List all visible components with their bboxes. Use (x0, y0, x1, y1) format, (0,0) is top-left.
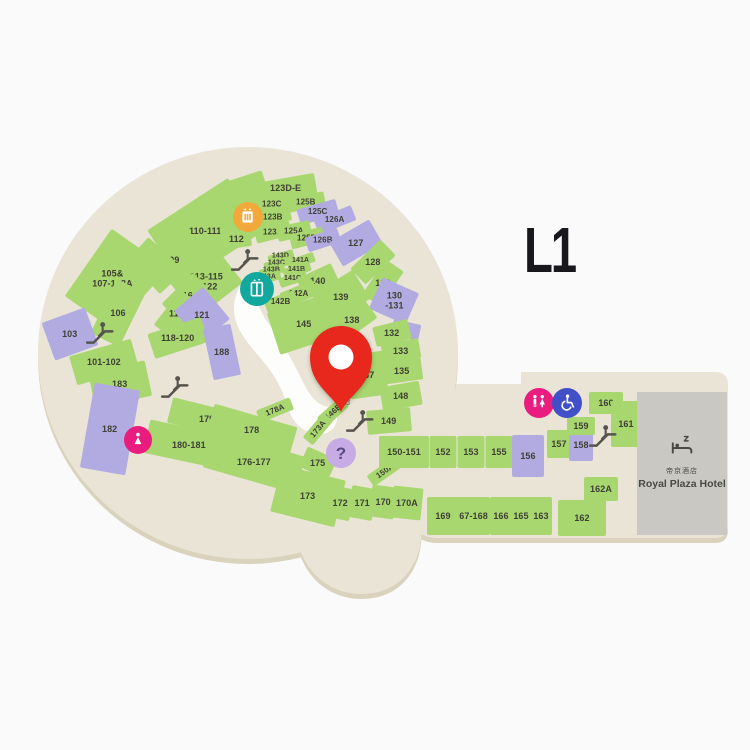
shop-label: 148 (393, 391, 408, 401)
shop-152[interactable]: 152 (430, 436, 457, 468)
information-icon: ? (326, 438, 356, 468)
shop-label: 159 (573, 421, 588, 431)
shop-label: 169 (435, 511, 450, 521)
shop-170A[interactable]: 170A (390, 486, 423, 521)
shop-label: 127 (348, 238, 363, 248)
shop-label: 133 (393, 346, 408, 356)
shop-label: 112 (229, 234, 244, 244)
shop-169[interactable]: 169 (427, 497, 459, 535)
toilet-icon (524, 388, 554, 418)
shop-156[interactable]: 156 (512, 435, 544, 477)
pin-icon (307, 322, 375, 414)
shop-label: 175 (310, 458, 325, 468)
shop-163[interactable]: 163 (530, 497, 552, 535)
service-machine-icon (233, 202, 263, 232)
shop-label: 150-151 (387, 447, 421, 457)
shop-label: 118-120 (161, 333, 194, 343)
shop-label: 166 (493, 511, 508, 521)
shop-165[interactable]: 165 (510, 497, 532, 535)
shop-153[interactable]: 153 (458, 436, 485, 468)
shop-label: 165 (513, 511, 528, 521)
shop-label: 176-177 (237, 457, 271, 467)
shop-label: 106 (110, 308, 125, 318)
royal-plaza-hotel-block: 帝京酒店 Royal Plaza Hotel (637, 392, 727, 535)
shop-162A[interactable]: 162A (584, 477, 618, 501)
shop-label: 132 (384, 328, 399, 338)
hotel-icon (668, 432, 696, 458)
shop-label: 162A (590, 484, 612, 494)
shop-label: 170A (396, 498, 418, 508)
shop-label: 161 (618, 419, 633, 429)
shop-label: 163 (533, 511, 548, 521)
hotel-name-zh: 帝京酒店 (666, 466, 698, 476)
shop-label: 149 (381, 416, 396, 426)
shop-155[interactable]: 155 (486, 436, 513, 468)
baby-care-icon (124, 426, 152, 454)
shop-label: 171 (354, 498, 369, 508)
accessible-toilet-icon (552, 388, 582, 418)
escalator-icon (230, 247, 260, 273)
shop-label: 180-181 (172, 440, 206, 450)
escalator-icon (160, 374, 190, 400)
shop-label: 155 (491, 447, 506, 457)
escalator-glyph (160, 374, 190, 400)
lift-icon (240, 272, 274, 306)
shop-166[interactable]: 166 (490, 497, 512, 535)
hotel-name-en: Royal Plaza Hotel (638, 478, 726, 490)
shop-162[interactable]: 162 (558, 500, 606, 536)
accessible-toilet-icon-glyph (557, 393, 576, 412)
shop-label: 110-111 (189, 226, 221, 236)
shop-label: 135 (394, 366, 409, 376)
shop-label: 158 (573, 440, 588, 450)
shop-label: 182 (102, 424, 117, 434)
floor-map: 110-111109108105& 107-108A106103101-1021… (0, 0, 750, 750)
shop-label: 153 (463, 447, 478, 457)
shop-label: 178 (244, 425, 259, 435)
question-mark-glyph: ? (336, 445, 346, 462)
shop-label: 123B (263, 212, 283, 221)
service-machine-icon-glyph (238, 207, 257, 226)
baby-care-icon-glyph (129, 431, 147, 449)
shop-label: 103 (62, 329, 77, 339)
shop-label: 128 (365, 257, 380, 267)
location-pin (307, 322, 375, 414)
shop-label: 167-168 (454, 511, 488, 521)
shop-label: 130 -131 (385, 291, 403, 312)
shop-label: 173 (300, 491, 315, 501)
shop-label: 172 (332, 498, 347, 508)
shop-150-151[interactable]: 150-151 (379, 436, 429, 468)
escalator-glyph (230, 247, 260, 273)
level-label: L1 (524, 218, 575, 282)
shop-label: 156 (520, 451, 535, 461)
lift-icon-glyph (246, 278, 268, 300)
shop-label: 126A (325, 215, 345, 224)
escalator-glyph (588, 423, 618, 449)
escalator-icon (85, 320, 115, 346)
escalator-icon (588, 423, 618, 449)
shop-label: 162 (574, 513, 589, 523)
shop-label: 157 (551, 439, 566, 449)
shop-label: 170 (375, 497, 390, 507)
escalator-glyph (85, 320, 115, 346)
shop-label: 152 (435, 447, 450, 457)
shop-label: 139 (333, 292, 348, 302)
shop-label: 188 (214, 347, 229, 357)
toilet-icon-glyph (529, 393, 548, 412)
